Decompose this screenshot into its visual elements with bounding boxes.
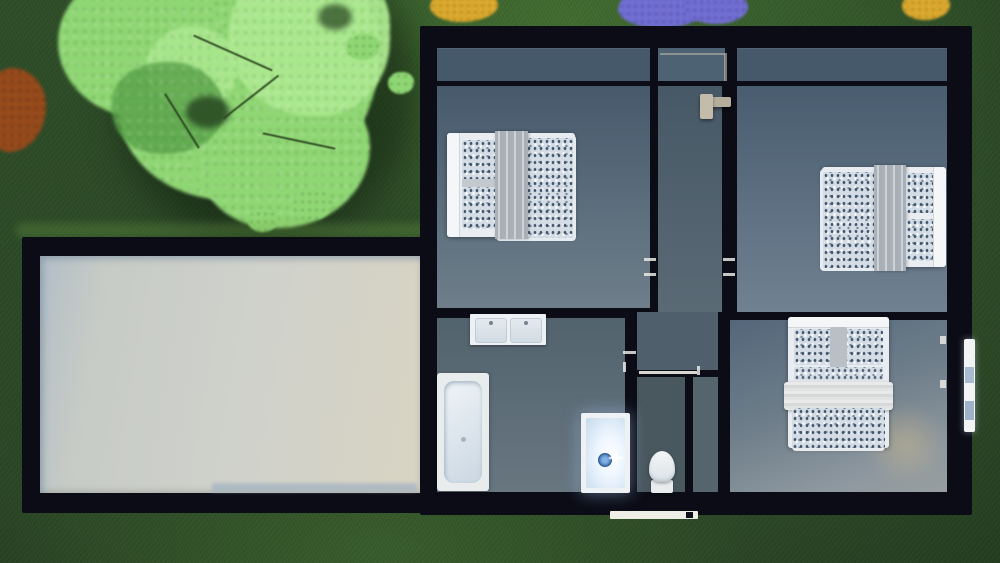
bed-pillow: [462, 187, 496, 229]
bathtub-basin: [444, 381, 482, 483]
bed-pillow: [794, 329, 834, 365]
door-jamb-bedroom-2: [723, 273, 735, 276]
bed-duvet: [792, 408, 885, 451]
bed-pillow: [843, 329, 883, 365]
closet-floor: [693, 377, 718, 492]
bed-throw-blanket: [874, 165, 906, 271]
stair-rail-post: [700, 94, 713, 119]
canopy-gap: [186, 96, 230, 128]
pillow-band: [462, 179, 496, 187]
grass-highlight: [16, 223, 440, 238]
double-sink-vanity: [470, 314, 546, 345]
bed-center-cushion: [830, 327, 847, 371]
light-sparkle: [615, 451, 617, 465]
faucet-dot: [524, 321, 528, 325]
entry-step-notch: [686, 512, 693, 518]
window-glass-segment: [965, 401, 974, 420]
house-outline: [420, 26, 972, 515]
stair-rail-line: [724, 53, 727, 81]
toilet: [649, 451, 675, 493]
door-jamb-bedroom-1: [644, 258, 656, 261]
yellow-flower-bed-right: [902, 0, 950, 20]
bed-headboard: [447, 133, 460, 237]
bed-pillow: [462, 140, 496, 179]
bed-pillow: [906, 173, 934, 213]
window-glass-segment: [965, 367, 974, 383]
door-jamb-bathroom: [623, 362, 626, 372]
bed-bedroom-2: [822, 167, 945, 267]
door-jamb-hallway: [697, 366, 700, 375]
side-window-sill: [964, 339, 975, 432]
hallway-lower-floor: [637, 312, 718, 370]
garage-block: [22, 237, 440, 513]
sink-basin: [475, 318, 507, 343]
hallway-upper-floor: [658, 86, 722, 312]
entry-step: [610, 511, 698, 519]
door-jamb-bedroom-1: [644, 273, 656, 276]
shower-drain: [598, 453, 612, 467]
garage-roof-edge-shade: [212, 483, 417, 492]
eave-strip-left: [437, 48, 650, 81]
faucet-dot: [489, 321, 493, 325]
garage-flat-roof: [40, 256, 422, 493]
canopy-gap: [318, 4, 352, 30]
bed-pillow-row: [794, 367, 883, 380]
toilet-bowl: [649, 451, 675, 482]
bed-folded-sheet: [784, 382, 893, 410]
orange-shrub: [0, 68, 46, 152]
window-jamb-right-wall: [940, 380, 946, 388]
window-jamb-right-wall: [940, 336, 946, 344]
bed-throw-blanket: [495, 131, 528, 239]
stair-rail-line: [660, 53, 724, 55]
door-jamb-bedroom-2: [723, 258, 735, 261]
shower-stall: [581, 413, 630, 493]
sink-basin: [510, 318, 542, 343]
bed-headboard: [933, 167, 946, 267]
door-jamb-bathroom: [623, 351, 636, 354]
bed-pillow: [906, 219, 934, 261]
bed-bedroom-1: [447, 133, 575, 237]
hallway-door-panel: [639, 371, 697, 374]
bed-bedroom-3: [788, 317, 889, 448]
eave-strip-right: [737, 48, 947, 81]
bathtub-drain: [461, 437, 466, 442]
bathtub: [437, 373, 489, 491]
floor-plan-scene: [0, 0, 1000, 563]
yellow-flower-bed-left: [430, 0, 498, 22]
